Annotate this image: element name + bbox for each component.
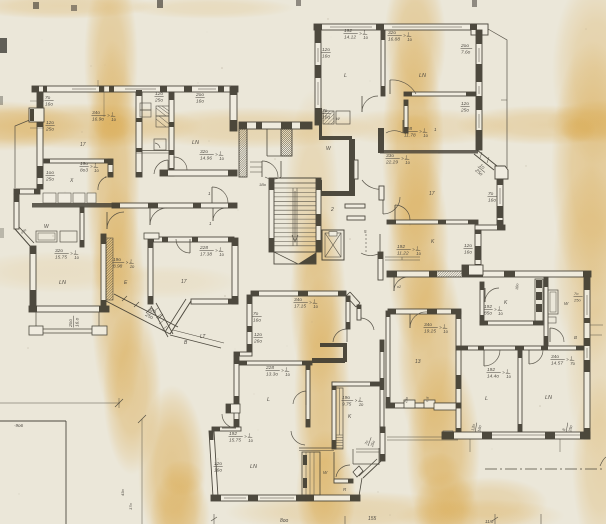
svg-text:LN: LN	[250, 464, 257, 470]
svg-text:43o: 43o	[120, 489, 125, 496]
svg-text:1: 1	[219, 247, 221, 252]
svg-text:155: 155	[368, 516, 377, 522]
svg-text:16o: 16o	[214, 467, 222, 473]
svg-text:1o: 1o	[94, 168, 99, 173]
svg-text:1Bo: 1Bo	[515, 283, 520, 290]
svg-text:1: 1	[285, 367, 287, 372]
svg-text:17: 17	[181, 279, 187, 285]
svg-text:LN: LN	[192, 140, 199, 146]
svg-text:1o: 1o	[111, 117, 116, 122]
svg-text:13: 13	[415, 359, 421, 365]
svg-text:L: L	[267, 397, 270, 403]
svg-text:1o: 1o	[498, 311, 503, 316]
svg-text:22.29: 22.29	[385, 159, 398, 165]
svg-text:14.4o: 14.4o	[487, 373, 499, 379]
svg-text:16o: 16o	[488, 197, 496, 203]
svg-text:7o: 7o	[574, 291, 579, 296]
svg-text:16o: 16o	[196, 98, 204, 104]
svg-text:16o: 16o	[45, 101, 53, 107]
svg-text:1: 1	[423, 128, 425, 133]
svg-text:1: 1	[407, 32, 409, 37]
svg-text:1o: 1o	[407, 37, 412, 42]
svg-text:1: 1	[498, 306, 500, 311]
svg-text:1: 1	[443, 324, 445, 329]
svg-text:17.38: 17.38	[200, 251, 212, 257]
svg-text:1: 1	[94, 163, 96, 168]
svg-text:8oo: 8oo	[280, 518, 289, 524]
svg-text:1o: 1o	[74, 255, 79, 260]
svg-text:7.6o: 7.6o	[461, 49, 471, 55]
svg-text:1o: 1o	[130, 264, 135, 269]
svg-text:1: 1	[111, 112, 113, 117]
svg-text:8o3: 8o3	[80, 167, 88, 173]
svg-text:14.96: 14.96	[200, 155, 212, 161]
svg-text:2: 2	[330, 207, 334, 213]
svg-text:1o: 1o	[248, 438, 253, 443]
svg-text:1: 1	[313, 299, 315, 304]
svg-text:9.75: 9.75	[342, 401, 352, 407]
svg-text:1: 1	[130, 259, 132, 264]
svg-text:1: 1	[405, 155, 407, 160]
svg-text:16.9o: 16.9o	[92, 116, 104, 122]
svg-text:16o: 16o	[322, 53, 330, 59]
svg-text:1o: 1o	[363, 35, 368, 40]
svg-text:14.12: 14.12	[344, 34, 356, 40]
svg-text:25o: 25o	[45, 176, 54, 182]
svg-text:17.15: 17.15	[294, 303, 306, 309]
svg-text:LN: LN	[545, 395, 552, 401]
svg-text:19.25: 19.25	[424, 328, 436, 334]
svg-text:1o: 1o	[423, 133, 428, 138]
svg-text:26o: 26o	[253, 338, 262, 344]
svg-text:1: 1	[416, 246, 418, 251]
svg-text:1: 1	[248, 433, 250, 438]
svg-text:LN: LN	[419, 73, 426, 79]
svg-text:85o: 85o	[484, 310, 492, 316]
svg-text:-9o6: -9o6	[14, 423, 24, 428]
svg-text:1o: 1o	[285, 372, 290, 377]
svg-text:1: 1	[359, 397, 361, 402]
svg-text:16o: 16o	[253, 317, 261, 323]
svg-text:16o: 16o	[322, 114, 330, 120]
svg-text:1o: 1o	[443, 329, 448, 334]
svg-text:15.75: 15.75	[55, 254, 67, 260]
svg-text:16.o: 16.o	[74, 317, 80, 327]
svg-text:17: 17	[429, 191, 435, 197]
svg-text:1o: 1o	[405, 160, 410, 165]
svg-text:15.75: 15.75	[229, 437, 241, 443]
svg-text:17: 17	[80, 142, 86, 148]
svg-text:1o: 1o	[219, 156, 224, 161]
svg-text:25o: 25o	[45, 126, 54, 132]
svg-text:1o: 1o	[416, 251, 421, 256]
svg-text:o.8: o.8	[425, 397, 430, 403]
svg-text:25o: 25o	[460, 107, 469, 113]
svg-text:1o: 1o	[313, 304, 318, 309]
svg-text:13.3o: 13.3o	[266, 371, 278, 377]
svg-text:7o: 7o	[570, 361, 575, 366]
svg-text:16o: 16o	[464, 249, 472, 255]
svg-text:11.22: 11.22	[397, 250, 409, 256]
svg-text:LN: LN	[59, 280, 66, 286]
svg-text:1: 1	[363, 30, 365, 35]
svg-text:17o: 17o	[128, 503, 133, 510]
svg-text:L: L	[485, 396, 488, 402]
svg-text:11.78: 11.78	[404, 132, 416, 138]
svg-text:14.57: 14.57	[551, 360, 563, 366]
svg-text:1: 1	[506, 369, 508, 374]
svg-text:X: X	[69, 178, 74, 184]
svg-text:1: 1	[219, 151, 221, 156]
svg-text:11m: 11m	[485, 519, 494, 524]
svg-text:1o: 1o	[359, 402, 364, 407]
svg-text:L: L	[344, 73, 347, 79]
svg-text:1Bo: 1Bo	[259, 182, 267, 187]
svg-text:25o: 25o	[154, 97, 163, 103]
svg-text:o2: o2	[397, 285, 401, 289]
svg-text:1: 1	[570, 356, 572, 361]
svg-text:1o: 1o	[506, 374, 511, 379]
svg-text:B: B	[574, 335, 577, 340]
svg-text:25o: 25o	[573, 297, 581, 302]
svg-text:16.88: 16.88	[388, 36, 400, 42]
svg-text:8.98: 8.98	[113, 263, 123, 269]
svg-text:1o: 1o	[219, 252, 224, 257]
svg-text:1: 1	[74, 250, 76, 255]
